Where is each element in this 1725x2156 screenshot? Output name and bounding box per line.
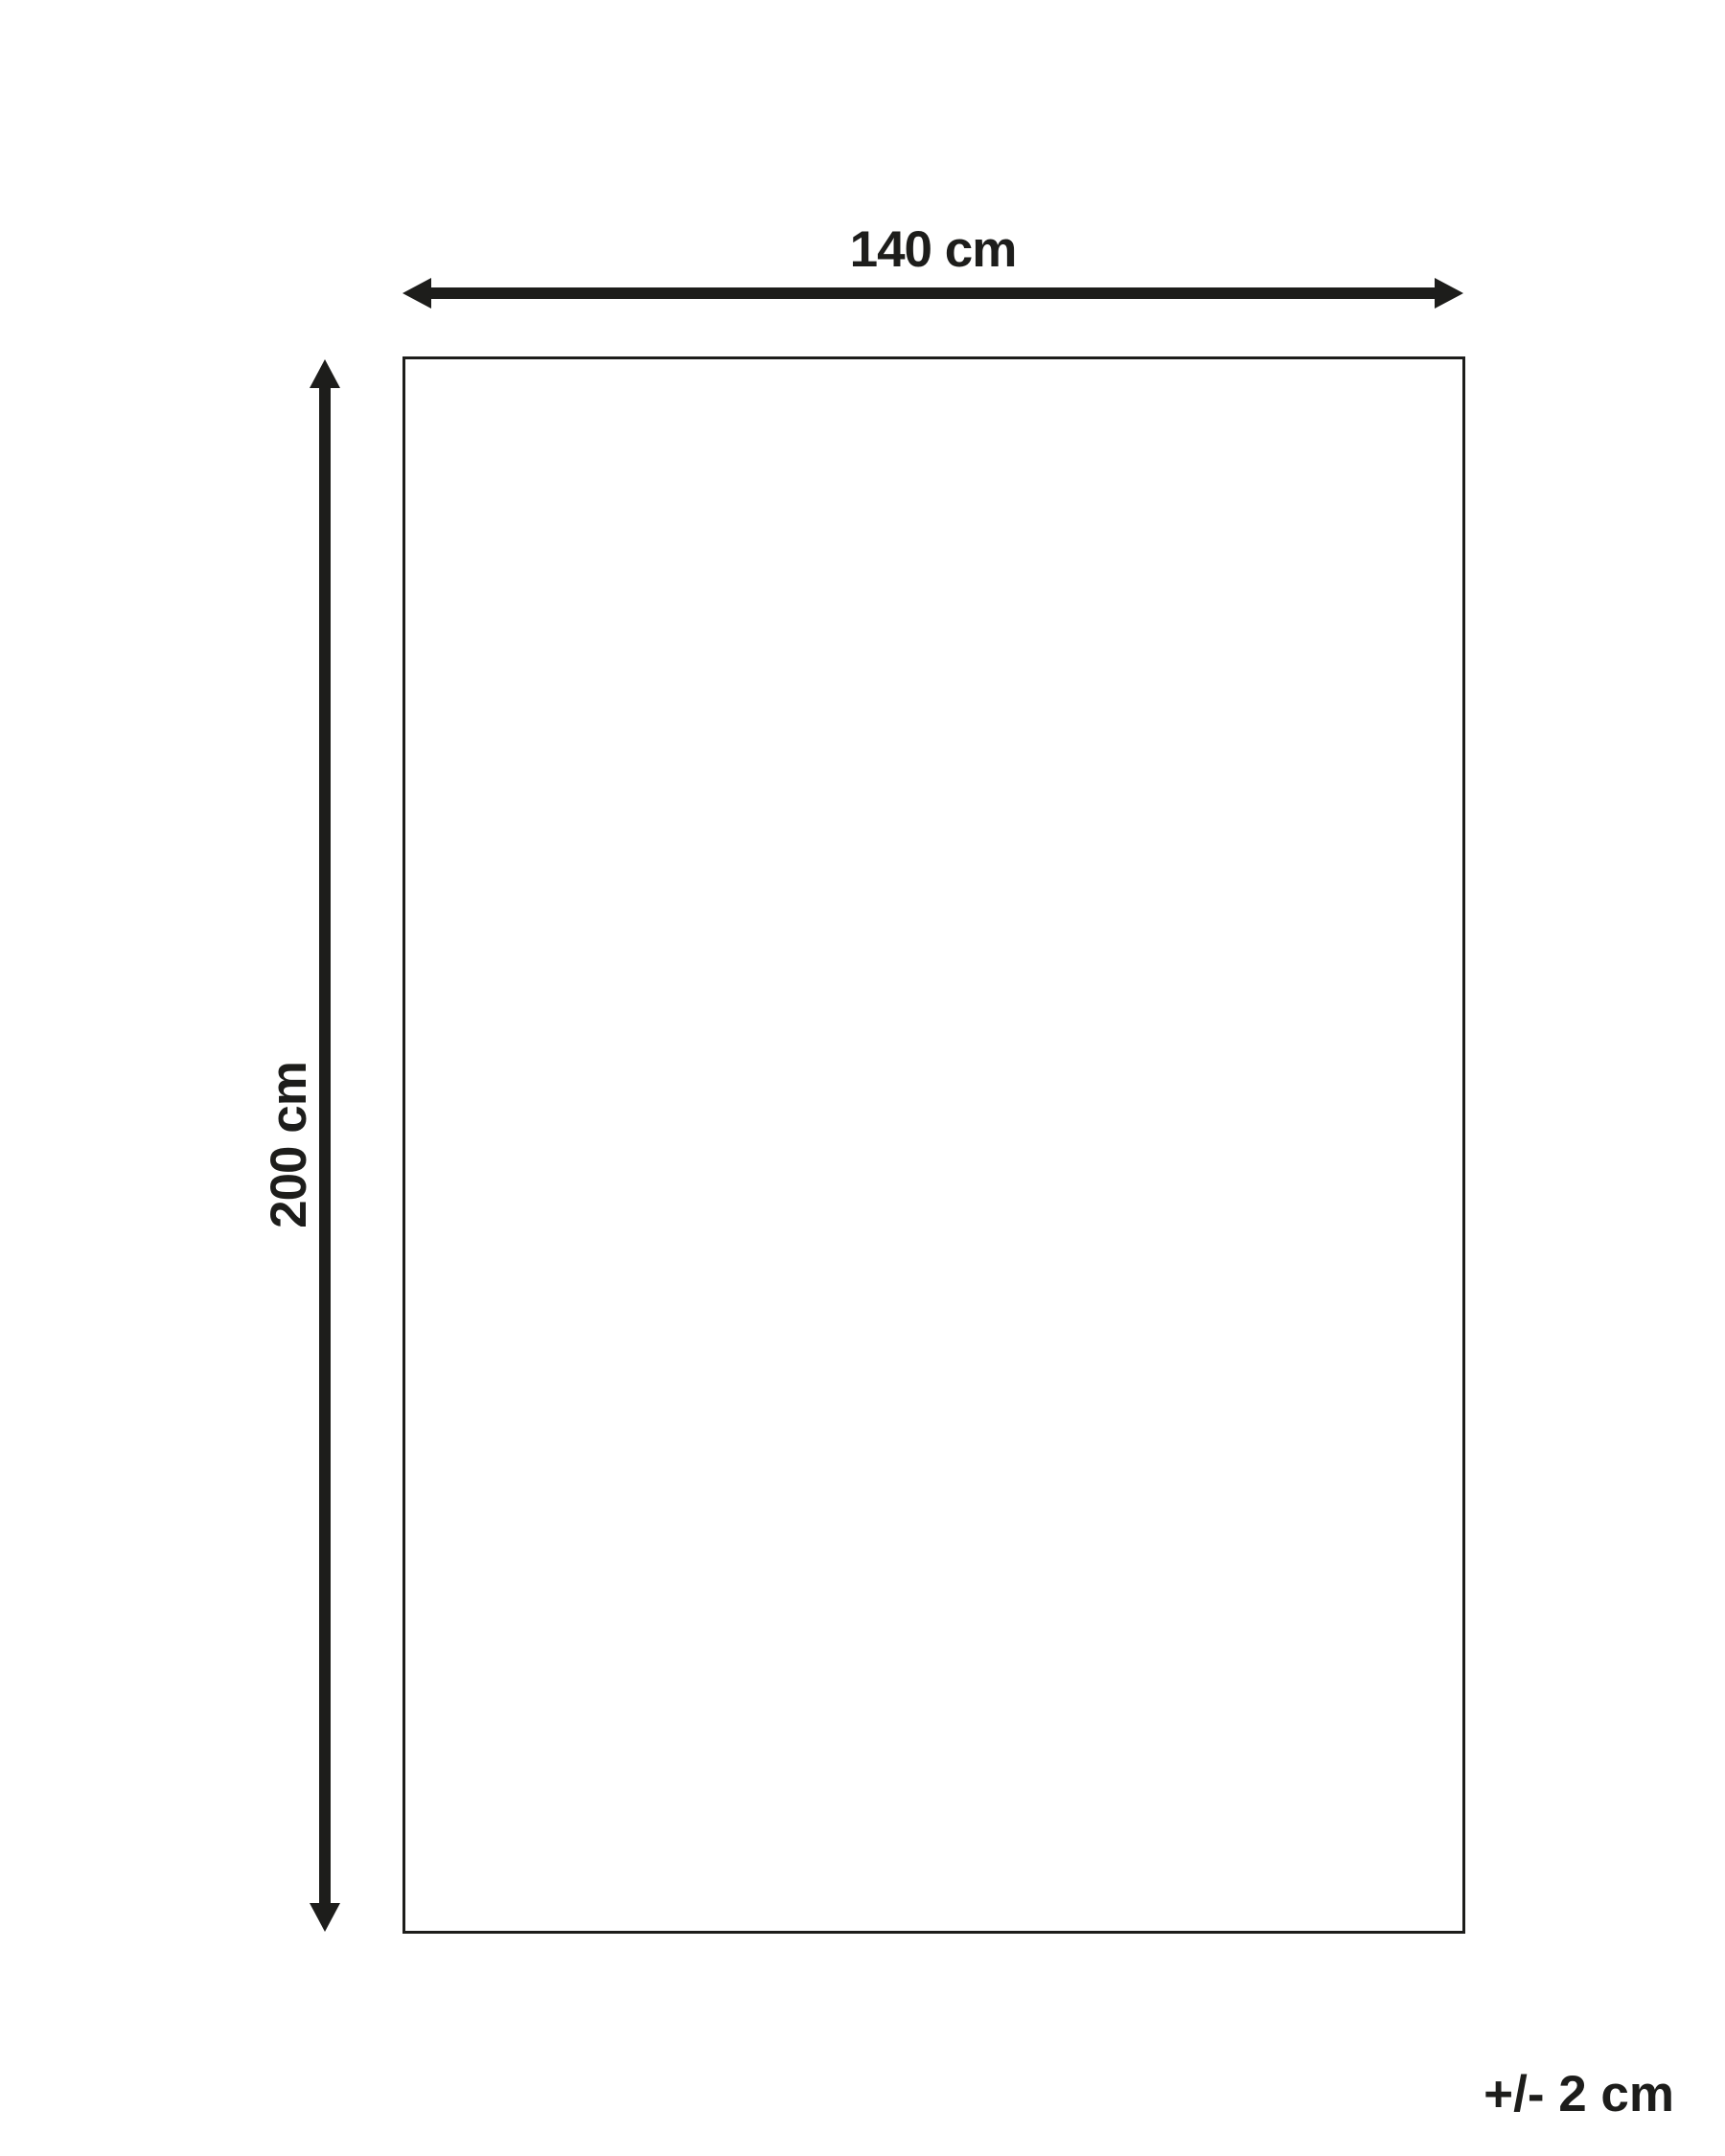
height-dimension-label: 200 cm: [263, 953, 316, 1337]
tolerance-label: +/- 2 cm: [1483, 2068, 1674, 2122]
height-dimension-arrow: [310, 359, 340, 1932]
dimension-diagram: 140 cm 200 cm +/- 2 cm: [0, 0, 1725, 2156]
width-dimension-label: 140 cm: [402, 223, 1463, 277]
width-arrow-shaft: [427, 287, 1438, 299]
arrow-down-icon: [310, 1903, 340, 1932]
width-dimension-arrow: [402, 278, 1463, 309]
height-arrow-shaft: [319, 384, 331, 1907]
arrow-right-icon: [1435, 278, 1463, 309]
product-outline-rectangle: [402, 356, 1465, 1934]
